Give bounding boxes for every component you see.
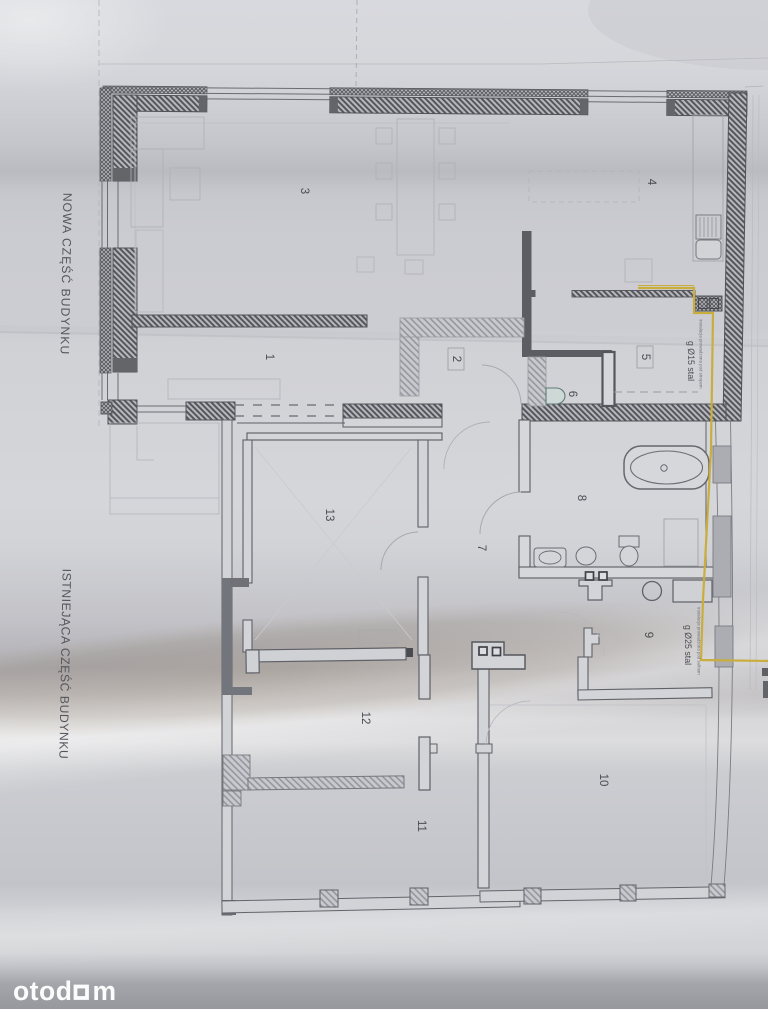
svg-text:g Ø25 stal: g Ø25 stal [683, 625, 693, 665]
svg-text:instalacja prowadzona pod stro: instalacja prowadzona pod stropem [699, 319, 704, 388]
svg-text:7: 7 [475, 545, 487, 551]
svg-text:m: m [93, 976, 117, 1006]
svg-text:5: 5 [639, 354, 651, 360]
svg-text:6: 6 [566, 391, 578, 397]
svg-text:2: 2 [450, 356, 462, 362]
svg-text:1: 1 [263, 354, 275, 360]
svg-text:12: 12 [359, 712, 371, 725]
svg-text:10: 10 [597, 774, 609, 787]
svg-text:13: 13 [323, 509, 335, 522]
svg-text:4: 4 [645, 179, 657, 186]
svg-text:3: 3 [298, 188, 310, 194]
svg-text:11: 11 [415, 820, 427, 832]
svg-text:NOWA CZĘŚĆ BUDYNKU: NOWA CZĘŚĆ BUDYNKU [58, 193, 76, 356]
svg-text:otod: otod [13, 976, 72, 1006]
svg-text:g Ø15 stal: g Ø15 stal [686, 341, 696, 381]
svg-text:instalacja prowadzona pod sufi: instalacja prowadzona pod sufitem [697, 607, 702, 675]
svg-text:8: 8 [575, 495, 587, 501]
svg-text:9: 9 [642, 632, 654, 638]
